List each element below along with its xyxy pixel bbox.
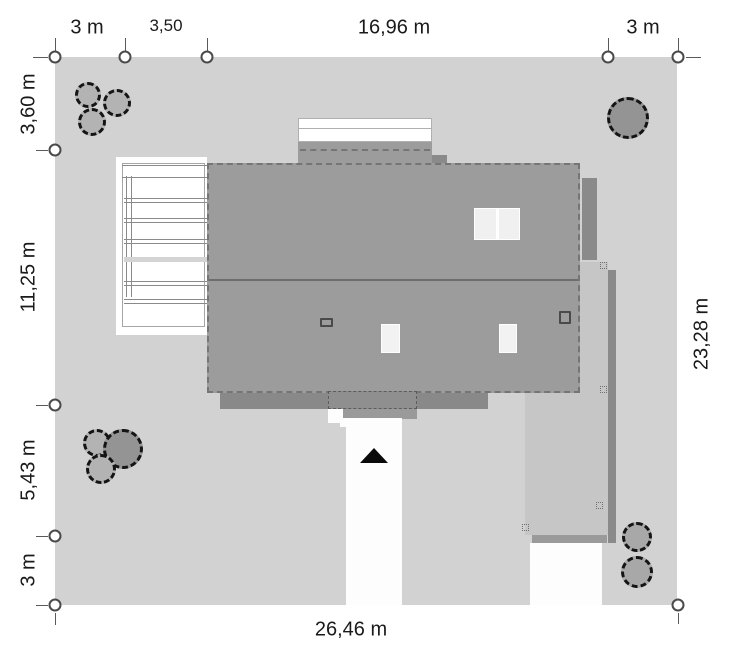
pergola-beam	[124, 239, 207, 244]
tree-icon	[103, 89, 131, 117]
pergola-beam	[124, 218, 207, 223]
boundary-marker	[49, 399, 62, 412]
terrace-edge	[532, 535, 607, 543]
dimension-tick	[36, 405, 48, 406]
entrance-arrow-icon	[360, 448, 388, 463]
dim-label-top-offset: 3,50	[149, 16, 182, 36]
dimension-tick	[36, 150, 48, 151]
dim-label-top-setback-right: 3 m	[626, 17, 659, 40]
dimension-tick	[36, 536, 48, 537]
dim-label-left-setback-top: 3,60 m	[18, 73, 41, 134]
tree-icon	[75, 82, 101, 108]
boundary-marker	[49, 51, 62, 64]
paving-corner-mark	[600, 262, 607, 269]
upper-deck	[298, 118, 432, 142]
house-roof	[207, 163, 580, 393]
tree-icon	[607, 97, 649, 139]
skylight	[381, 324, 400, 353]
dimension-tick	[678, 613, 679, 624]
dimension-tick	[678, 38, 679, 51]
dimension-tick	[36, 605, 48, 606]
pergola-side-beam	[126, 176, 132, 297]
dim-label-top-house-width: 16,96 m	[358, 17, 430, 40]
skylight-pair	[474, 208, 520, 240]
tree-icon	[78, 108, 106, 136]
dimension-tick	[207, 38, 208, 51]
paving-corner-mark	[596, 502, 603, 509]
boundary-marker	[49, 144, 62, 157]
dimension-tick	[686, 57, 701, 58]
paving-corner-mark	[522, 524, 529, 531]
dimension-tick	[55, 38, 56, 51]
boundary-marker	[201, 51, 214, 64]
dim-label-left-house-depth: 11,25 m	[18, 242, 41, 313]
pergola-terrace	[116, 157, 207, 335]
boundary-marker	[672, 599, 685, 612]
upper-deck-line	[299, 128, 431, 129]
side-wall-block	[582, 178, 597, 260]
side-terrace	[525, 393, 608, 535]
upper-bay-roof	[298, 142, 432, 163]
skylight	[499, 324, 517, 353]
plot-area	[55, 57, 677, 605]
paving-corner-mark	[600, 386, 607, 393]
dim-label-bottom-plot-width: 26,46 m	[315, 619, 387, 642]
dimension-tick	[55, 613, 56, 625]
dim-label-left-garden-depth: 5,43 m	[18, 439, 41, 500]
side-terrace	[580, 262, 608, 393]
dimension-tick	[33, 57, 48, 58]
terrace-wall	[608, 270, 616, 543]
dim-label-right-plot-depth: 23,28 m	[691, 298, 714, 370]
dim-label-left-setback-bottom: 3 m	[18, 553, 41, 586]
driveway	[346, 419, 402, 605]
skylight	[475, 209, 496, 239]
dimension-tick	[125, 38, 126, 51]
site-plan-drawing: 3 m 3,50 16,96 m 3 m 3,60 m 11,25 m 5,43…	[0, 0, 737, 658]
boundary-marker	[49, 599, 62, 612]
boundary-marker	[672, 51, 685, 64]
eaves-band	[417, 393, 488, 409]
boundary-marker	[602, 51, 615, 64]
skylight	[499, 209, 520, 239]
dim-label-top-setback-left: 3 m	[70, 17, 103, 40]
pergola-beam	[124, 198, 207, 203]
upper-bay-roof-edge	[300, 149, 430, 151]
tree-icon	[86, 454, 116, 484]
pergola-beam	[124, 299, 207, 304]
bay-step	[432, 155, 447, 163]
chimney-outline	[320, 318, 333, 327]
pergola-header-beam	[122, 165, 207, 178]
dimension-tick	[608, 38, 609, 51]
tree-icon	[622, 522, 652, 552]
boundary-marker	[49, 530, 62, 543]
entrance-porch-roof	[328, 391, 417, 409]
paved-patch	[530, 543, 602, 605]
pergola-band	[124, 257, 207, 262]
roof-ridge-line	[209, 279, 578, 281]
pergola-beam	[124, 281, 207, 286]
chimney-outline	[559, 311, 571, 324]
boundary-marker	[119, 51, 132, 64]
tree-icon	[621, 556, 653, 588]
